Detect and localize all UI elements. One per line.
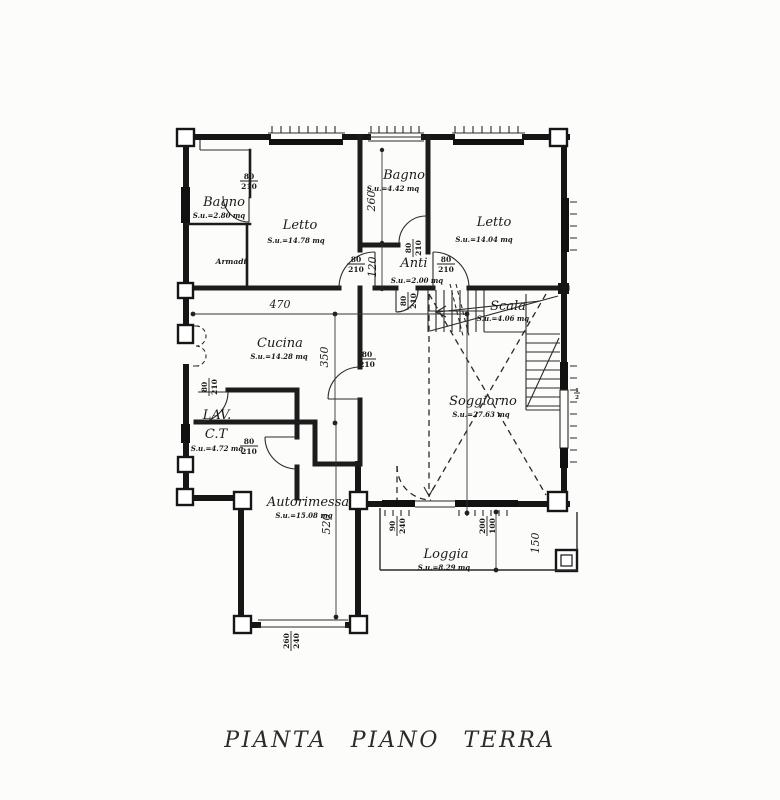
door-lav-side xyxy=(265,437,297,469)
svg-text:210: 210 xyxy=(241,447,257,456)
svg-text:90: 90 xyxy=(388,521,397,531)
room-label-soggiorno: Soggiorno xyxy=(449,394,517,409)
svg-text:260: 260 xyxy=(282,633,291,649)
room-area-autorimessa: S.u.=15.08 mq xyxy=(275,511,332,520)
svg-text:80: 80 xyxy=(404,243,413,253)
room-area-anti: S.u.=2.00 mq xyxy=(391,276,444,285)
svg-text:2: 2 xyxy=(575,395,579,401)
room-label-anti: Anti xyxy=(399,256,427,271)
opening-label-bagno-tl: 80210 xyxy=(240,172,258,191)
room-area-soggiorno: S.u.=27.63 mq xyxy=(452,410,509,419)
window-bottom-right xyxy=(455,500,518,516)
svg-text:240: 240 xyxy=(292,633,301,649)
dim-bagno-m-depth: 260 xyxy=(365,191,378,213)
svg-text:210: 210 xyxy=(210,379,219,395)
svg-text:80: 80 xyxy=(200,382,209,392)
room-label-bagno-m: Bagno xyxy=(382,168,425,183)
room-label-cucina: Cucina xyxy=(257,336,303,351)
room-area-loggia: S.u.=8.29 mq xyxy=(418,563,471,572)
door-soggiorno-loggia-dashed xyxy=(397,466,431,500)
floor-plan-drawing: 470 350 520 260 120 150 80210 80210 8021… xyxy=(0,0,780,800)
svg-text:80: 80 xyxy=(244,172,254,181)
room-area-bagno-m: S.u.=4.42 mq xyxy=(367,184,420,193)
room-area-letto-l: S.u.=14.78 mq xyxy=(267,236,324,245)
svg-text:80: 80 xyxy=(441,255,451,264)
svg-text:210: 210 xyxy=(409,293,418,309)
opening-label-lav-top: 80210 xyxy=(200,378,219,396)
svg-text:210: 210 xyxy=(438,265,454,274)
scanned-floor-plan-page: 470 350 520 260 120 150 80210 80210 8021… xyxy=(0,0,780,800)
room-label-loggia: Loggia xyxy=(422,547,468,562)
window-soggiorno-right xyxy=(560,362,577,468)
svg-text:210: 210 xyxy=(414,240,423,256)
window-top-left xyxy=(268,126,345,145)
svg-text:210: 210 xyxy=(241,182,257,191)
window-top-right xyxy=(452,126,525,145)
door-cucina xyxy=(328,367,360,399)
svg-text:80: 80 xyxy=(244,437,254,446)
svg-text:80: 80 xyxy=(351,255,361,264)
room-area-letto-r: S.u.=14.04 mq xyxy=(455,235,512,244)
room-label-letto-r: Letto xyxy=(476,215,512,230)
room-label-letto-l: Letto xyxy=(282,218,318,233)
window-top-middle xyxy=(368,126,424,141)
room-label-scala: Scala xyxy=(490,299,526,314)
svg-text:80: 80 xyxy=(399,296,408,306)
room-label-autorimessa: Autorimessa xyxy=(266,495,349,510)
window-lav-left xyxy=(181,424,190,443)
svg-text:210: 210 xyxy=(359,360,375,369)
room-area-bagno-tl: S.u.=2.80 mq xyxy=(193,211,246,220)
svg-text:210: 210 xyxy=(348,265,364,274)
opening-label-anti-bottom: 80210 xyxy=(399,292,418,310)
svg-text:200: 200 xyxy=(478,518,487,534)
room-label-armadi: Armadi xyxy=(215,257,247,266)
plan-title: PIANTA PIANO TERRA xyxy=(223,728,555,753)
loggia-pillar xyxy=(556,550,577,571)
window-bagno-left xyxy=(181,187,190,223)
garage-door xyxy=(258,620,348,627)
room-label-bagno-tl: Bagno xyxy=(202,195,245,210)
opening-label-loggia-win-right: 200100 xyxy=(478,516,497,536)
window-bottom-left xyxy=(382,500,415,516)
svg-text:240: 240 xyxy=(398,518,407,534)
room-area-lav: S.u.=4.72 mq xyxy=(191,444,244,453)
opening-label-anti-left: 80210 xyxy=(347,255,365,274)
folding-door-cucina xyxy=(193,326,206,366)
door-bagno-m xyxy=(399,216,426,243)
room-label-lav: LAV. xyxy=(202,408,232,423)
svg-text:100: 100 xyxy=(488,518,497,534)
opening-label-garage-door: 260240 xyxy=(282,631,301,651)
opening-label-loggia-win-left: 90240 xyxy=(388,516,407,536)
dim-loggia-depth: 150 xyxy=(529,533,542,554)
dim-anti-depth: 120 xyxy=(366,257,379,278)
room-label-ct: C.T xyxy=(205,427,229,442)
opening-label-bagno-m: 80210 xyxy=(404,239,423,257)
dim-cucina-width: 470 xyxy=(269,298,291,311)
room-area-scala: S.u.=4.06 mq xyxy=(477,314,530,323)
window-letto-right xyxy=(561,198,577,252)
loggia-outline xyxy=(380,508,578,570)
opening-label-window-mark: 12 xyxy=(574,388,580,401)
svg-text:80: 80 xyxy=(362,350,372,359)
room-area-cucina: S.u.=14.28 mq xyxy=(250,352,307,361)
door-bottom-gap xyxy=(415,501,455,507)
dim-cucina-depth: 350 xyxy=(318,347,331,368)
